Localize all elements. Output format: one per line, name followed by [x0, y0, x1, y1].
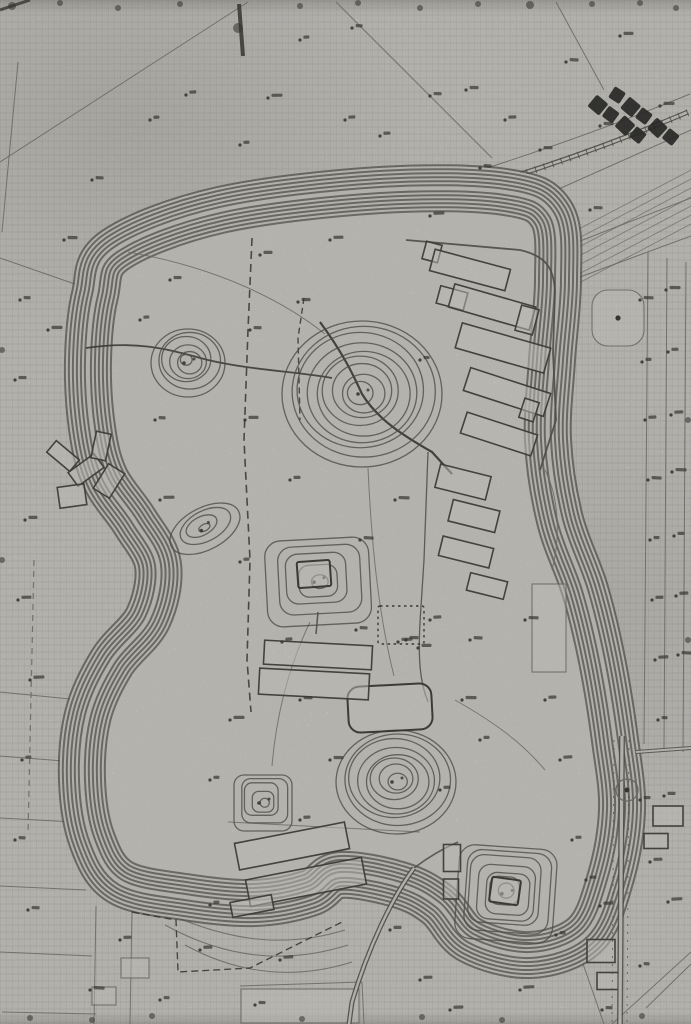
contour-site-map — [0, 0, 691, 1024]
scanned-map-page — [0, 0, 691, 1024]
scan-grain-overlay — [0, 0, 691, 1024]
